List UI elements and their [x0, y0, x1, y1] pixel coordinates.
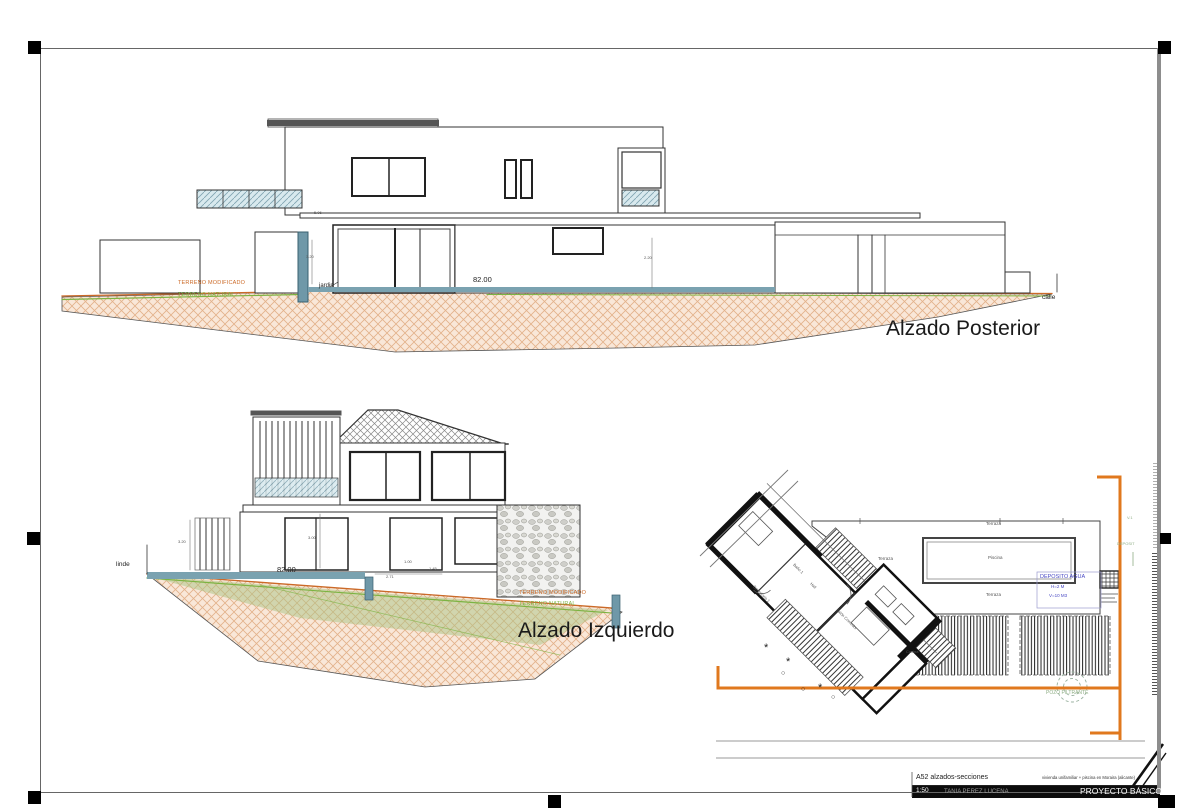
circle-symbol-2: ○ — [801, 686, 805, 693]
pozo-filtrante-label: POZO FILTRANTE — [1046, 691, 1088, 696]
jardin-label: jardin — [319, 283, 334, 289]
terraza-label-3: Terraza — [986, 593, 1001, 598]
registration-mark-left-middle — [27, 532, 40, 545]
terraza-label-2: Terraza — [878, 557, 893, 562]
dim-320-top: 3.20 — [306, 255, 314, 259]
star-symbol-1: * — [764, 643, 768, 654]
dim-82-top: 82.00 — [473, 276, 492, 284]
dim-506: 5.06 — [314, 211, 322, 215]
circle-symbol-1: ○ — [781, 670, 785, 677]
terraza-label-1: Terraza — [986, 522, 1001, 527]
sheet-border-right — [1157, 48, 1161, 793]
author-name: TANIA PEREZ LUCENA — [944, 789, 1009, 795]
star-symbol-3: * — [818, 683, 822, 694]
deposito-agua-label: DEPOSITO AGUA — [1040, 575, 1085, 581]
piscina-label: Piscina — [988, 556, 1003, 561]
drawing-sheet: TERRENO MODIFICADO TERRENO NATURAL jardi… — [0, 0, 1202, 812]
registration-mark-right-middle — [1160, 533, 1171, 544]
dim-320-left: 3.20 — [178, 540, 186, 544]
registration-mark-bottom-left — [28, 791, 41, 804]
calle-label: calle — [1042, 295, 1055, 302]
dim-82-left: 82.00 — [277, 566, 296, 574]
alzado-izquierdo-title: Alzado Izquierdo — [518, 620, 674, 641]
deposito-h-label: H=2 M — [1051, 585, 1064, 590]
deposit-label: DEPOSIT — [1117, 542, 1135, 546]
scale-value: 1:50 — [916, 788, 929, 795]
registration-mark-bottom-middle — [548, 795, 561, 808]
v1-label: V.1 — [1127, 516, 1133, 520]
dim-271: 2.71 — [386, 575, 394, 579]
terreno-modificado-left-label: TERRENO MODIFICADO — [519, 591, 586, 597]
terreno-natural-left-label: TERRENO NATURAL — [519, 602, 576, 608]
dim-145: 1.45 — [429, 567, 437, 571]
deposito-v-label: V=10 M3 — [1049, 594, 1067, 599]
circle-symbol-3: ○ — [831, 694, 835, 701]
sheet-border — [40, 48, 1158, 793]
dim-100: 1.00 — [404, 560, 412, 564]
project-phase: PROYECTO BÁSICO — [1080, 787, 1157, 796]
project-description: vivienda unifamiliar + piscina en Morair… — [1030, 776, 1135, 780]
alzado-posterior-title: Alzado Posterior — [886, 318, 1040, 339]
registration-mark-top-left — [28, 41, 41, 54]
terreno-modificado-top-label: TERRENO MODIFICADO — [178, 281, 245, 287]
star-symbol-2: * — [786, 657, 790, 668]
dim-220: 2.20 — [644, 256, 652, 260]
cocina-label: Cocina — [906, 650, 918, 654]
dim-300: 3.00 — [308, 536, 316, 540]
terreno-natural-top-label: TERRENO NATURAL — [178, 293, 235, 299]
registration-mark-bottom-right — [1158, 795, 1175, 808]
registration-mark-top-right — [1158, 41, 1171, 54]
sheet-code: A52 alzados-secciones — [916, 774, 988, 781]
linde-label: linde — [116, 562, 130, 569]
